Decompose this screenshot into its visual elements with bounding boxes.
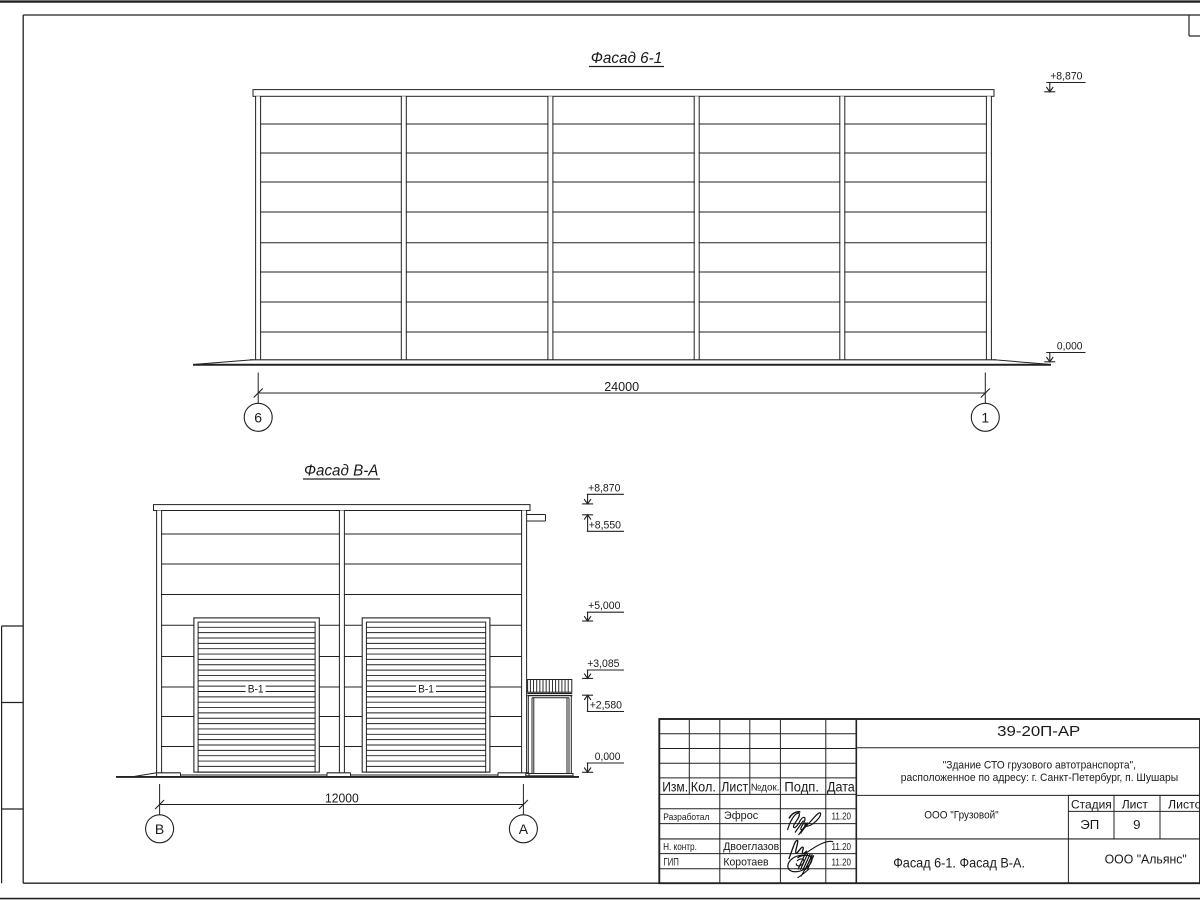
svg-text:39-20П-АР: 39-20П-АР — [997, 724, 1080, 740]
svg-text:0,000: 0,000 — [1057, 341, 1083, 353]
svg-text:расположенное по адресу: г. Са: расположенное по адресу: г. Санкт-Петерб… — [901, 772, 1179, 784]
svg-text:Дата: Дата — [827, 780, 855, 795]
svg-text:Разработал: Разработал — [663, 812, 709, 823]
svg-text:Кол.: Кол. — [691, 780, 716, 795]
svg-text:ЭП: ЭП — [1080, 817, 1099, 832]
svg-text:Листов: Листов — [1168, 798, 1200, 812]
svg-text:0,000: 0,000 — [595, 751, 621, 763]
svg-text:Двоеглазов: Двоеглазов — [723, 841, 779, 853]
svg-text:+3,085: +3,085 — [587, 658, 619, 670]
svg-text:+8,550: +8,550 — [589, 519, 621, 531]
svg-text:1: 1 — [981, 409, 989, 425]
svg-text:№док.: №док. — [751, 783, 780, 794]
svg-text:Стадия: Стадия — [1071, 798, 1112, 812]
svg-text:В: В — [155, 821, 164, 837]
svg-text:11.20: 11.20 — [832, 858, 852, 869]
svg-text:Лист: Лист — [721, 780, 748, 795]
svg-text:А: А — [519, 821, 529, 837]
svg-text:12000: 12000 — [325, 791, 359, 805]
svg-text:"Здание СТО грузового автотран: "Здание СТО грузового автотранспорта", — [943, 759, 1136, 771]
svg-text:Фасад В-А: Фасад В-А — [304, 463, 379, 480]
svg-text:Фасад 6-1. Фасад В-А.: Фасад 6-1. Фасад В-А. — [893, 854, 1025, 870]
svg-text:6: 6 — [254, 409, 262, 425]
svg-text:ООО "Альянс": ООО "Альянс" — [1105, 852, 1187, 867]
svg-text:+2,580: +2,580 — [590, 700, 622, 712]
svg-text:В-1: В-1 — [418, 683, 434, 695]
svg-text:ООО "Грузовой": ООО "Грузовой" — [924, 810, 999, 822]
svg-text:Подп.: Подп. — [784, 780, 819, 795]
svg-text:Лист: Лист — [1122, 798, 1149, 812]
svg-text:Н. контр.: Н. контр. — [663, 842, 697, 853]
svg-text:ГИП: ГИП — [663, 857, 679, 869]
svg-text:Фасад 6-1: Фасад 6-1 — [591, 50, 663, 67]
svg-text:9: 9 — [1133, 817, 1140, 832]
svg-text:В-1: В-1 — [248, 683, 264, 695]
svg-text:Эфрос: Эфрос — [724, 810, 759, 822]
svg-text:Изм.: Изм. — [662, 780, 688, 795]
svg-text:11.20: 11.20 — [832, 842, 852, 853]
svg-text:+5,000: +5,000 — [588, 600, 620, 612]
svg-text:24000: 24000 — [604, 380, 639, 394]
svg-text:11.20: 11.20 — [832, 811, 852, 822]
svg-text:+8,870: +8,870 — [1050, 71, 1082, 83]
svg-text:Коротаев: Коротаев — [723, 857, 768, 869]
svg-text:+8,870: +8,870 — [588, 482, 620, 494]
